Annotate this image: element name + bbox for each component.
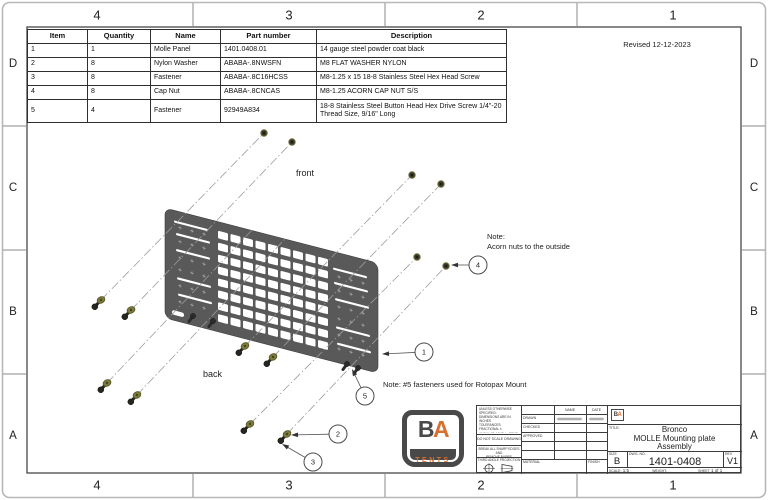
scale-value: 1:5 [623, 468, 629, 473]
third-angle-projection-icon [482, 463, 516, 474]
hex-screw-with-washer [128, 390, 142, 404]
bom-cell: Nylon Washer [151, 58, 221, 72]
zone-number: 2 [477, 478, 484, 493]
logo-letter-a: A [433, 416, 448, 442]
balloon-number: 2 [336, 430, 340, 439]
revised-date-note: Revised 12-12-2023 [592, 40, 722, 49]
bom-cell: 4 [88, 100, 151, 123]
logo-tents-bar: TENTS [410, 449, 456, 460]
title-block: UNLESS OTHERWISE SPECIFIED:DIMENSIONS AR… [476, 405, 741, 473]
zone-letter: B [750, 306, 758, 318]
bom-header-cell: Name [151, 30, 221, 44]
row-label-drawn: DRAWN [523, 416, 536, 420]
zone-number: 2 [477, 8, 484, 23]
bom-row: 54Fastener92949A83418-8 Stainless Steel … [28, 100, 507, 123]
acorn-cap-nut [443, 263, 449, 269]
do-not-scale-note: DO NOT SCALE DRAWING [477, 437, 521, 441]
bom-cell: 14 gauge steel powder coat black [317, 44, 507, 58]
bom-row: 28Nylon WasherABABA-.8NWSFNM8 FLAT WASHE… [28, 58, 507, 72]
note-acorn-line2: Acorn nuts to the outside [487, 242, 570, 252]
bom-cell: ABABA-.8C16HCSS [221, 72, 317, 86]
hex-screw-with-washer [92, 295, 106, 309]
balloon-callout: 1 [382, 343, 433, 361]
zone-number: 4 [93, 478, 100, 493]
bom-cell: ABABA-.8NWSFN [221, 58, 317, 72]
break-edges-line1: BREAK ALL SHARP EDGES AND [477, 447, 521, 455]
icon-letter-a: A [618, 412, 622, 418]
scale-row: SCALE: 1:5 WEIGHT: SHEET 1 of 1 [609, 468, 742, 473]
weight-label: WEIGHT: [652, 469, 667, 473]
logo-tents-text: TENTS [415, 457, 450, 464]
bom-cell: 4 [28, 86, 88, 100]
bom-cell: 8 [88, 86, 151, 100]
zone-number: 3 [285, 8, 292, 23]
zone-number: 1 [669, 478, 676, 493]
projection-label: THIRD ANGLE PROJECTION [477, 458, 521, 462]
acorn-cap-nut [289, 139, 295, 145]
size-value: B [607, 456, 627, 467]
zone-number: 4 [93, 8, 100, 23]
bom-cell: Fastener [151, 100, 221, 123]
bom-cell: ABABA-.8CNCAS [221, 86, 317, 100]
bom-cell: 8 [88, 58, 151, 72]
bom-cell: 2 [28, 58, 88, 72]
sheet-label: SHEET [698, 469, 710, 473]
logo-ba-text: BA [407, 416, 459, 442]
zone-letter: D [750, 58, 758, 70]
bom-row: 48Cap NutABABA-.8CNCASM8-1.25 ACORN CAP … [28, 86, 507, 100]
note-acorn-line1: Note: [487, 232, 570, 242]
dwg-no-value: 1401-0408 [627, 456, 723, 468]
drawing-sheet: 12345 43214321DCBADCBA ItemQuantityNameP… [0, 0, 768, 500]
drawn-name-entry [557, 418, 582, 421]
material-label: MATERIAL [523, 460, 540, 464]
balloon-callout: 5 [352, 369, 374, 405]
acorn-cap-nut [261, 130, 267, 136]
balloon-callout: 3 [282, 444, 322, 471]
row-label-checked: CHECKED [523, 425, 540, 429]
ba-tents-logo: BA TENTS [402, 410, 464, 467]
bom-cell: M8-1.25 x 15 18-8 Stainless Steel Hex He… [317, 72, 507, 86]
zone-number: 3 [285, 478, 292, 493]
bom-cell: Molle Panel [151, 44, 221, 58]
label-back: back [203, 369, 222, 379]
balloon-number: 3 [311, 458, 315, 467]
drawing-title: Bronco MOLLE Mounting plate Assembly [607, 426, 742, 452]
balloon-number: 4 [476, 261, 480, 270]
bom-header-cell: Quantity [88, 30, 151, 44]
zone-letter: C [9, 182, 17, 194]
bom-cell: 1 [28, 44, 88, 58]
bom-cell: 1 [88, 44, 151, 58]
balloon-callout: 2 [291, 425, 347, 443]
bom-cell: 18-8 Stainless Steel Button Head Hex Dri… [317, 100, 507, 123]
bom-header-cell: Part number [221, 30, 317, 44]
title-block-logo-icon: BA [611, 409, 624, 421]
acorn-cap-nut [438, 181, 444, 187]
bom-cell: 1401.0408.01 [221, 44, 317, 58]
hex-screw-with-washer [278, 429, 292, 443]
drawn-date-entry [589, 418, 604, 421]
col-header-date: DATE [586, 408, 607, 412]
bom-header-cell: Item [28, 30, 88, 44]
note-acorn-nuts: Note: Acorn nuts to the outside [487, 232, 570, 252]
bom-cell: Cap Nut [151, 86, 221, 100]
row-label-approved: APPROVED [523, 434, 542, 438]
balloon-callout: 4 [451, 256, 487, 274]
bom-header-cell: Description [317, 30, 507, 44]
bom-cell: 5 [28, 100, 88, 123]
hex-screw-with-washer [236, 341, 250, 355]
bom-cell: M8 FLAT WASHER NYLON [317, 58, 507, 72]
balloon-number: 5 [363, 392, 367, 401]
tolerance-line: DIMENSIONS ARE IN INCHES [479, 415, 520, 423]
hex-screw-with-washer [98, 378, 112, 392]
label-front: front [296, 168, 314, 178]
hex-screw-with-washer [264, 352, 278, 366]
rev-value: V1 [723, 456, 742, 466]
zone-letter: A [750, 430, 758, 442]
scale-label: SCALE: [609, 469, 621, 473]
zone-letter: B [9, 306, 17, 318]
finish-label: FINISH [588, 460, 599, 464]
title-line-3: Assembly [607, 443, 742, 452]
tolerance-line: ANGULAR: MACH ± BEND ± [479, 432, 520, 433]
sheet-value: 1 of 1 [711, 468, 722, 473]
zone-letter: C [750, 182, 758, 194]
zone-number: 1 [669, 8, 676, 23]
balloon-number: 1 [422, 348, 426, 357]
bom-row: 38FastenerABABA-.8C16HCSSM8-1.25 x 15 18… [28, 72, 507, 86]
tolerance-notes: UNLESS OTHERWISE SPECIFIED:DIMENSIONS AR… [479, 407, 520, 433]
bom-cell: M8-1.25 ACORN CAP NUT S/S [317, 86, 507, 100]
tolerance-line: UNLESS OTHERWISE SPECIFIED: [479, 407, 520, 415]
hex-screw-with-washer [122, 305, 136, 319]
acorn-cap-nut [409, 172, 415, 178]
bom-cell: 92949A834 [221, 100, 317, 123]
bom-cell: 3 [28, 72, 88, 86]
note-rotopax: Note: #5 fasteners used for Rotopax Moun… [383, 380, 526, 389]
zone-letter: A [9, 430, 17, 442]
zone-letter: D [9, 58, 17, 70]
molle-panel [165, 208, 378, 373]
bom-cell: Fastener [151, 72, 221, 86]
hex-screw-with-washer [241, 419, 255, 433]
acorn-cap-nut [414, 254, 420, 260]
logo-letter-b: B [418, 416, 433, 442]
bom-cell: 8 [88, 72, 151, 86]
parts-table: ItemQuantityNamePart numberDescription 1… [27, 29, 507, 123]
bom-row: 11Molle Panel1401.0408.0114 gauge steel … [28, 44, 507, 58]
col-header-name: NAME [554, 408, 586, 412]
